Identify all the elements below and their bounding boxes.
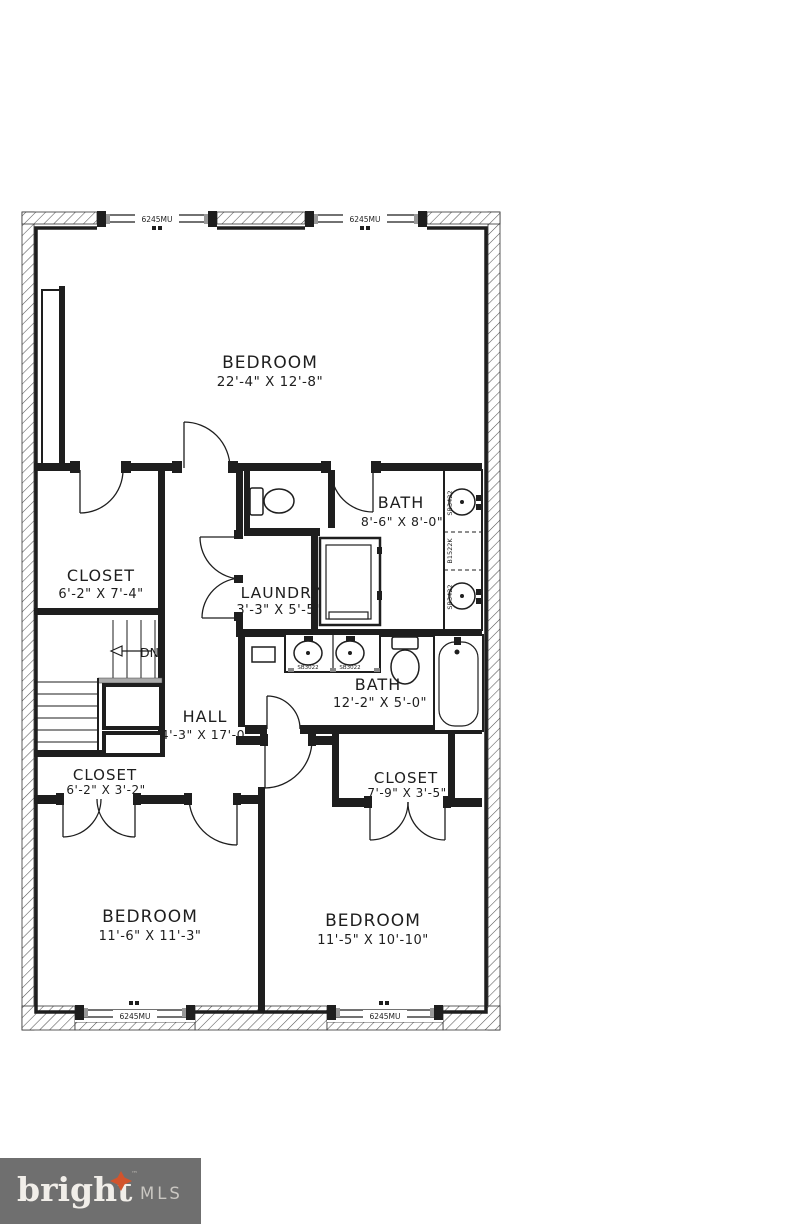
door-right-closet-a	[370, 802, 408, 840]
double-sink-vanity-fixture: SB3022 SB3022	[285, 634, 380, 672]
room-label-hall: HALL	[183, 707, 228, 726]
logo-suffix-text: MLS	[140, 1184, 183, 1203]
room-dims-laundry: 3'-3" X 5'-5"	[236, 603, 321, 618]
door-right-bedroom	[265, 740, 312, 788]
logo-brand-text: bright	[17, 1170, 133, 1209]
staircase: DN	[34, 620, 162, 757]
room-dims-closet-upper-left: 6'-2" X 7'-4"	[58, 587, 143, 602]
window-label: 6245MU	[119, 1012, 150, 1021]
door-lower-bath	[267, 696, 300, 729]
room-dims-bedroom-top: 22'-4" X 12'-8"	[217, 374, 323, 390]
room-dims-bedroom-lower-right: 11'-5" X 10'-10"	[317, 933, 429, 948]
room-dims-bath-upper: 8'-6" X 8'-0"	[361, 514, 443, 529]
vanity-sink-label: SB3422	[446, 490, 454, 515]
room-dims-closet-lower-left: 6'-2" X 3'-2"	[66, 783, 145, 797]
room-dims-bath-lower: 12'-2" X 5'-0"	[333, 696, 427, 711]
room-label-bath-upper: BATH	[378, 493, 424, 512]
room-label-closet-lower-right: CLOSET	[374, 769, 438, 787]
door-upper-closet	[80, 470, 123, 513]
window-label: 6245MU	[349, 215, 380, 224]
door-left-bedroom	[189, 797, 237, 845]
bathtub-fixture	[434, 635, 483, 731]
logo-tm-mark: ™	[131, 1170, 138, 1178]
room-dims-hall: 4'-3" X 17'-0"	[161, 727, 252, 742]
room-dims-closet-lower-right: 7'-9" X 3'-5"	[367, 786, 446, 800]
window-label: 6245MU	[369, 1012, 400, 1021]
vanity-sink-label: SB3422	[446, 584, 454, 609]
window-top-left: 6245MU	[97, 210, 217, 234]
window-bottom-left: 6245MU	[75, 1001, 195, 1022]
linen-shelf	[252, 647, 275, 662]
toilet-fixture	[250, 488, 294, 515]
shower-fixture	[320, 538, 382, 625]
door-right-closet-b	[408, 802, 445, 840]
room-label-bedroom-lower-right: BEDROOM	[325, 911, 421, 931]
floor-plan-page: 6245MU 6245MU 6245MU 6245MU	[0, 0, 792, 1224]
window-bottom-right: 6245MU	[327, 1001, 443, 1022]
sink-label: SB3022	[339, 665, 360, 671]
room-dims-bedroom-lower-left: 11'-6" X 11'-3"	[99, 929, 202, 944]
bright-mls-logo: bright ™ MLS	[0, 1158, 201, 1224]
stair-well	[104, 685, 161, 728]
stairs-dn-label: DN	[140, 645, 159, 660]
sink-label: SB3022	[297, 665, 318, 671]
vanity-cabinet-label: B1522K	[446, 538, 454, 564]
door-top-bedroom	[184, 422, 230, 468]
floor-plan: 6245MU 6245MU 6245MU 6245MU	[0, 0, 792, 1224]
room-label-bedroom-top: BEDROOM	[222, 353, 318, 373]
room-label-closet-lower-left: CLOSET	[73, 766, 137, 784]
door-laundry-upper	[200, 537, 242, 579]
door-upper-bath	[331, 470, 373, 512]
room-label-bath-lower: BATH	[355, 675, 401, 694]
room-label-closet-upper-left: CLOSET	[67, 566, 135, 585]
double-vanity-fixture: SB3422 B1522K SB3422	[444, 470, 482, 630]
window-label: 6245MU	[141, 215, 172, 224]
room-label-laundry: LAUNDRY	[241, 584, 322, 602]
window-top-right: 6245MU	[305, 210, 427, 234]
room-label-bedroom-lower-left: BEDROOM	[102, 907, 198, 927]
stair-well-lower	[104, 733, 162, 755]
door-left-closet-a	[63, 799, 101, 837]
door-left-closet-b	[97, 799, 135, 837]
